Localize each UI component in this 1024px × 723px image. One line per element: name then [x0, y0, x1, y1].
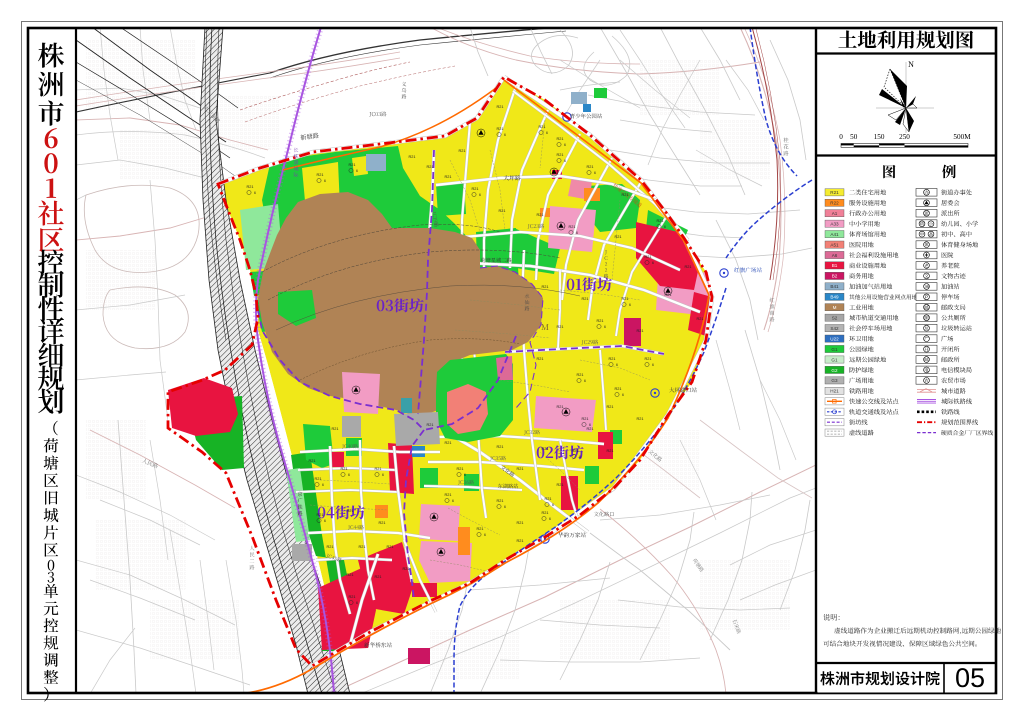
svg-text:6: 6: [652, 261, 654, 265]
svg-text:R21: R21: [587, 165, 594, 169]
svg-text:6: 6: [622, 393, 624, 397]
svg-text:6: 6: [324, 179, 326, 183]
svg-text:6: 6: [664, 225, 666, 229]
svg-text:R21: R21: [607, 405, 614, 409]
svg-text:R21: R21: [537, 213, 544, 217]
svg-text:R21: R21: [637, 417, 644, 421]
svg-text:R21: R21: [615, 235, 622, 239]
svg-text:A1: A1: [832, 211, 838, 216]
svg-text:R21: R21: [557, 405, 564, 409]
svg-text:250: 250: [899, 133, 910, 141]
svg-text:6: 6: [479, 193, 481, 197]
svg-text:6: 6: [356, 169, 358, 173]
svg-text:6: 6: [254, 191, 256, 195]
svg-text:6: 6: [504, 133, 506, 137]
svg-text:R21: R21: [477, 527, 484, 531]
svg-text:G3: G3: [831, 378, 838, 383]
svg-text:R21: R21: [347, 509, 354, 513]
svg-text:G2: G2: [831, 368, 838, 373]
svg-text:R21: R21: [517, 467, 524, 471]
svg-text:R21: R21: [685, 265, 692, 269]
svg-text:B2: B2: [832, 274, 838, 279]
svg-text:R21: R21: [537, 357, 544, 361]
svg-text:S2: S2: [832, 316, 838, 321]
svg-text:R21: R21: [645, 357, 652, 361]
svg-text:50: 50: [850, 133, 858, 141]
svg-text:R21: R21: [497, 499, 504, 503]
svg-text:R21: R21: [657, 219, 664, 223]
svg-text:R21: R21: [582, 417, 589, 421]
svg-text:R21: R21: [597, 319, 604, 323]
svg-text:500M: 500M: [953, 133, 971, 141]
svg-text:A33: A33: [830, 222, 839, 227]
svg-text:R21: R21: [609, 357, 616, 361]
svg-text:6: 6: [576, 231, 578, 235]
svg-text:R21: R21: [622, 193, 629, 197]
svg-text:R21: R21: [445, 441, 452, 445]
svg-text:R21: R21: [445, 175, 452, 179]
svg-text:R21: R21: [341, 467, 348, 471]
svg-text:R21: R21: [622, 297, 629, 301]
svg-text:R21: R21: [317, 513, 324, 517]
svg-text:R21: R21: [349, 595, 356, 599]
svg-text:R21: R21: [375, 467, 382, 471]
svg-text:6: 6: [629, 303, 631, 307]
svg-text:6: 6: [604, 325, 606, 329]
svg-text:R21: R21: [347, 573, 354, 577]
svg-text:6: 6: [564, 143, 566, 147]
svg-text:R21: R21: [637, 329, 644, 333]
svg-text:R21: R21: [665, 293, 672, 297]
svg-text:R21: R21: [497, 445, 504, 449]
svg-text:R21: R21: [572, 449, 579, 453]
svg-text:R21: R21: [577, 373, 584, 377]
svg-text:0: 0: [839, 133, 843, 141]
svg-text:6: 6: [484, 533, 486, 537]
svg-text:6: 6: [382, 473, 384, 477]
svg-text:R21: R21: [697, 317, 704, 321]
svg-text:R21: R21: [542, 285, 549, 289]
svg-text:R21: R21: [557, 153, 564, 157]
svg-text:R21: R21: [569, 225, 576, 229]
svg-text:6: 6: [348, 473, 350, 477]
svg-text:R21: R21: [403, 567, 410, 571]
svg-text:U22: U22: [830, 336, 839, 341]
svg-text:G1: G1: [831, 347, 838, 352]
svg-text:6: 6: [579, 455, 581, 459]
svg-text:R21: R21: [557, 325, 564, 329]
svg-text:R21: R21: [427, 423, 434, 427]
svg-text:6: 6: [594, 171, 596, 175]
svg-text:P: P: [925, 295, 928, 300]
svg-text:6: 6: [452, 499, 454, 503]
svg-text:R21: R21: [615, 387, 622, 391]
svg-text:R21: R21: [375, 575, 382, 579]
svg-text:M: M: [833, 305, 837, 310]
svg-text:H21: H21: [830, 389, 839, 394]
svg-text:6: 6: [322, 483, 324, 487]
svg-text:B41: B41: [830, 284, 839, 289]
svg-text:R21: R21: [557, 137, 564, 141]
svg-text:6: 6: [356, 601, 358, 605]
svg-text:6: 6: [546, 131, 548, 135]
svg-text:A6: A6: [832, 253, 838, 258]
svg-text:R21: R21: [349, 163, 356, 167]
svg-text:6: 6: [552, 503, 554, 507]
svg-text:A41: A41: [830, 232, 839, 237]
svg-text:R21: R21: [830, 190, 839, 195]
svg-text:R21: R21: [332, 427, 339, 431]
svg-text:R21: R21: [539, 125, 546, 129]
svg-text:6: 6: [504, 505, 506, 509]
svg-text:R21: R21: [542, 511, 549, 515]
svg-text:R21: R21: [645, 255, 652, 259]
svg-text:R21: R21: [445, 493, 452, 497]
svg-text:G1: G1: [831, 357, 838, 362]
svg-text:R21: R21: [309, 459, 316, 463]
svg-text:R21: R21: [247, 185, 254, 189]
svg-text:R21: R21: [542, 447, 549, 451]
svg-text:R21: R21: [607, 449, 614, 453]
svg-text:6: 6: [616, 363, 618, 367]
svg-text:N: N: [908, 60, 914, 69]
svg-text:R21: R21: [427, 165, 434, 169]
svg-text:R21: R21: [582, 297, 589, 301]
svg-text:R21: R21: [587, 427, 594, 431]
svg-text:6: 6: [324, 519, 326, 523]
svg-text:R21: R21: [545, 497, 552, 501]
svg-text:6: 6: [584, 379, 586, 383]
svg-text:R21: R21: [517, 539, 524, 543]
svg-text:6: 6: [464, 473, 466, 477]
svg-text:R21: R21: [379, 521, 386, 525]
svg-text:6: 6: [652, 363, 654, 367]
svg-text:R22: R22: [830, 201, 839, 206]
svg-text:R21: R21: [315, 477, 322, 481]
svg-text:S42: S42: [830, 326, 839, 331]
svg-text:R21: R21: [472, 187, 479, 191]
svg-text:R21: R21: [317, 173, 324, 177]
svg-text:R21: R21: [497, 127, 504, 131]
svg-text:R21: R21: [517, 521, 524, 525]
svg-text:R21: R21: [457, 467, 464, 471]
svg-text:B1: B1: [832, 263, 838, 268]
svg-text:R21: R21: [497, 105, 504, 109]
svg-text:R21: R21: [359, 545, 366, 549]
svg-text:R21: R21: [409, 155, 416, 159]
svg-text:R21: R21: [499, 209, 506, 213]
svg-text:B49: B49: [830, 295, 839, 300]
svg-text:R21: R21: [557, 483, 564, 487]
svg-text:150: 150: [874, 133, 885, 141]
svg-text:A51: A51: [830, 242, 839, 247]
svg-text:R21: R21: [327, 545, 334, 549]
svg-text:6: 6: [549, 517, 551, 521]
svg-text:6: 6: [564, 159, 566, 163]
svg-text:R21: R21: [459, 149, 466, 153]
svg-text:R21: R21: [387, 545, 394, 549]
